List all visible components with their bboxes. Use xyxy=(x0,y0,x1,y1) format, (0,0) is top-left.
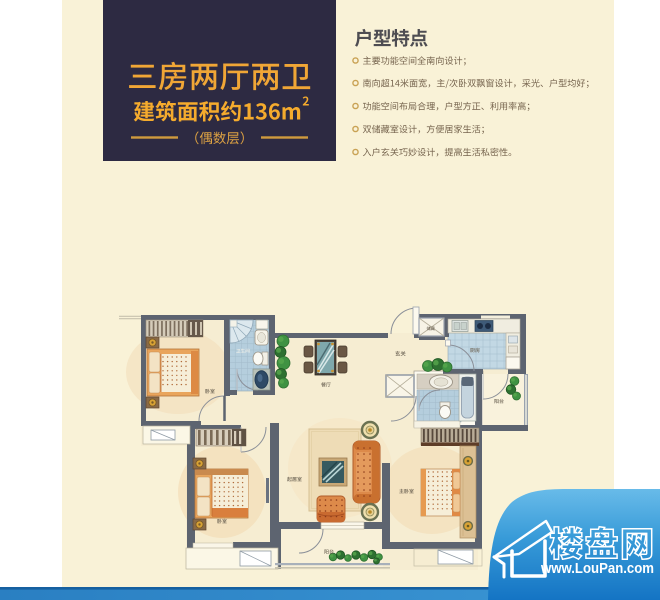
svg-text:www.LouPan.com: www.LouPan.com xyxy=(540,560,654,577)
